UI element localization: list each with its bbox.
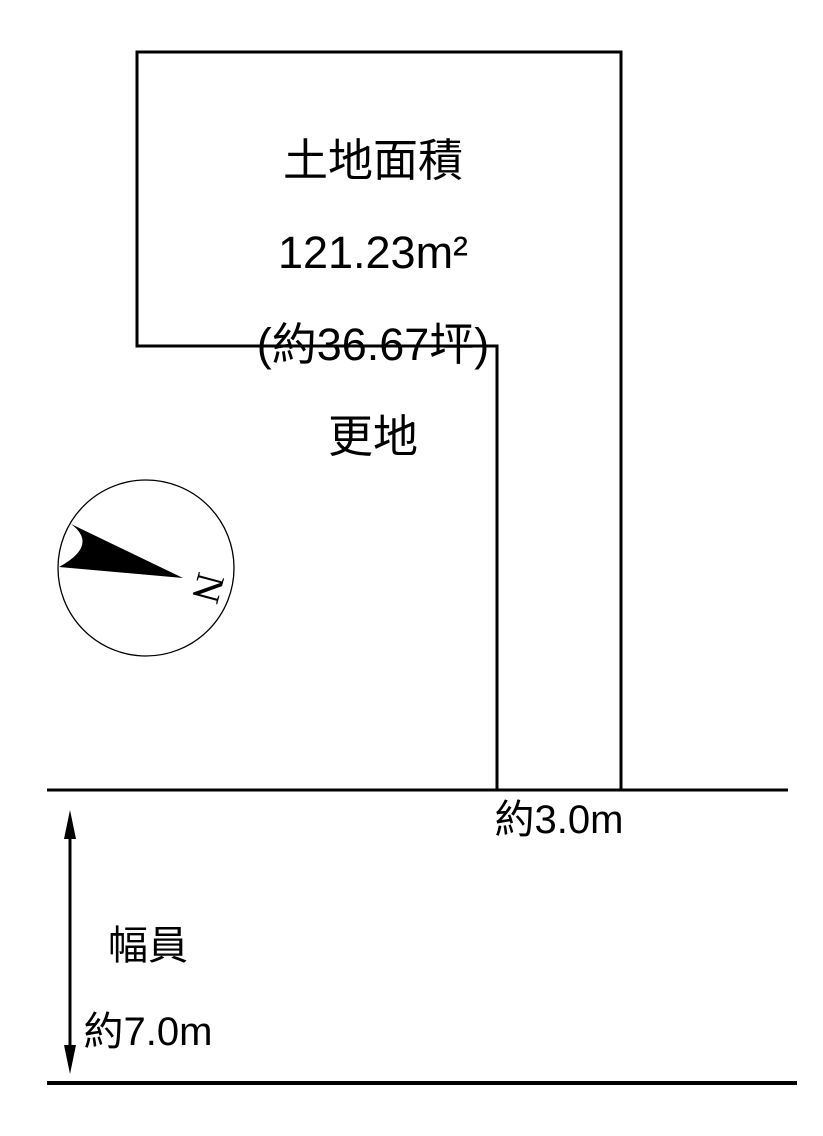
land-area-sqm: 121.23m² xyxy=(131,230,615,276)
frontage-dimension-label: 約3.0m xyxy=(478,799,640,841)
dimension-arrow-up-icon xyxy=(64,810,76,839)
land-area-title: 土地面積 xyxy=(131,138,615,184)
land-plot-diagram: 土地面積 121.23m² (約36.67坪) 更地 約3.0m 幅員 約7.0… xyxy=(0,0,823,1136)
road-width-label-line2: 約7.0m xyxy=(58,1011,238,1054)
road-width-dimension-label: 幅員 約7.0m xyxy=(58,882,238,1097)
land-area-tsubo: (約36.67坪) xyxy=(131,322,615,368)
road-width-label-line1: 幅員 xyxy=(58,925,238,968)
land-info-block: 土地面積 121.23m² (約36.67坪) 更地 xyxy=(131,92,615,506)
land-status: 更地 xyxy=(131,414,615,460)
